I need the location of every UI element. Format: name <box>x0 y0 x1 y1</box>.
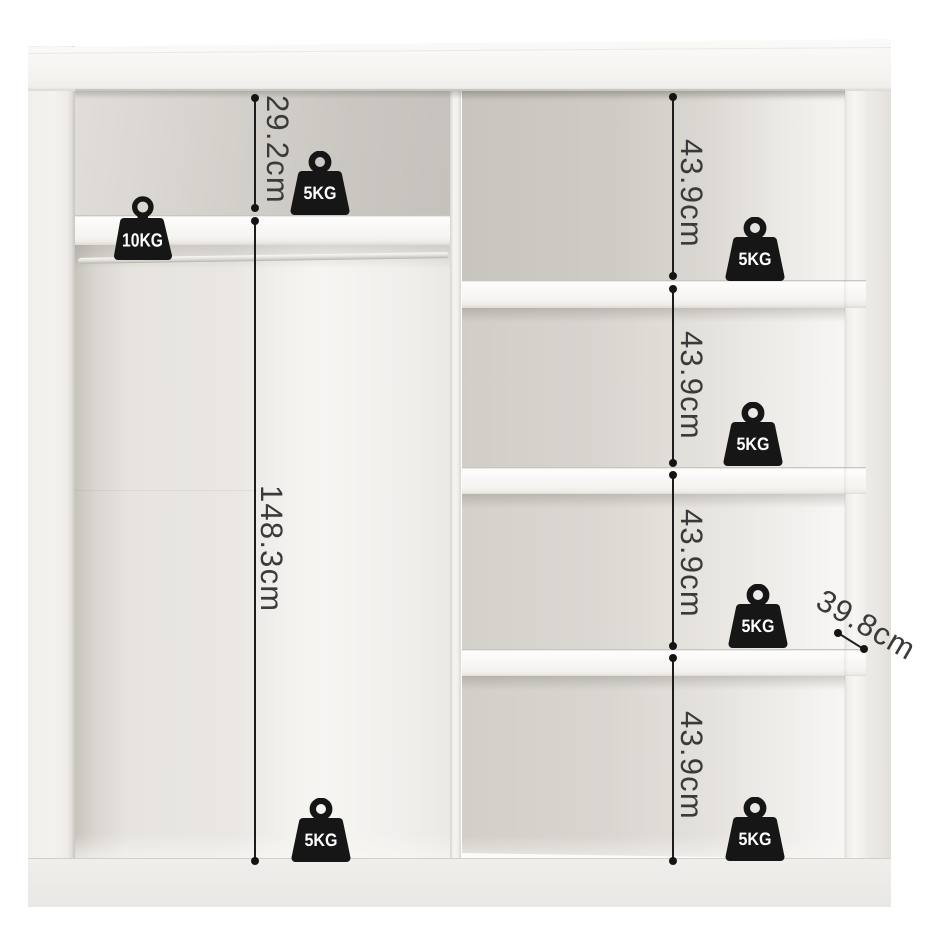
svg-text:5KG: 5KG <box>303 183 336 203</box>
svg-text:5KG: 5KG <box>738 249 771 269</box>
svg-text:10KG: 10KG <box>122 230 163 251</box>
svg-text:5KG: 5KG <box>738 829 771 849</box>
svg-text:5KG: 5KG <box>304 830 337 850</box>
svg-text:5KG: 5KG <box>741 616 774 636</box>
svg-text:5KG: 5KG <box>736 434 769 454</box>
